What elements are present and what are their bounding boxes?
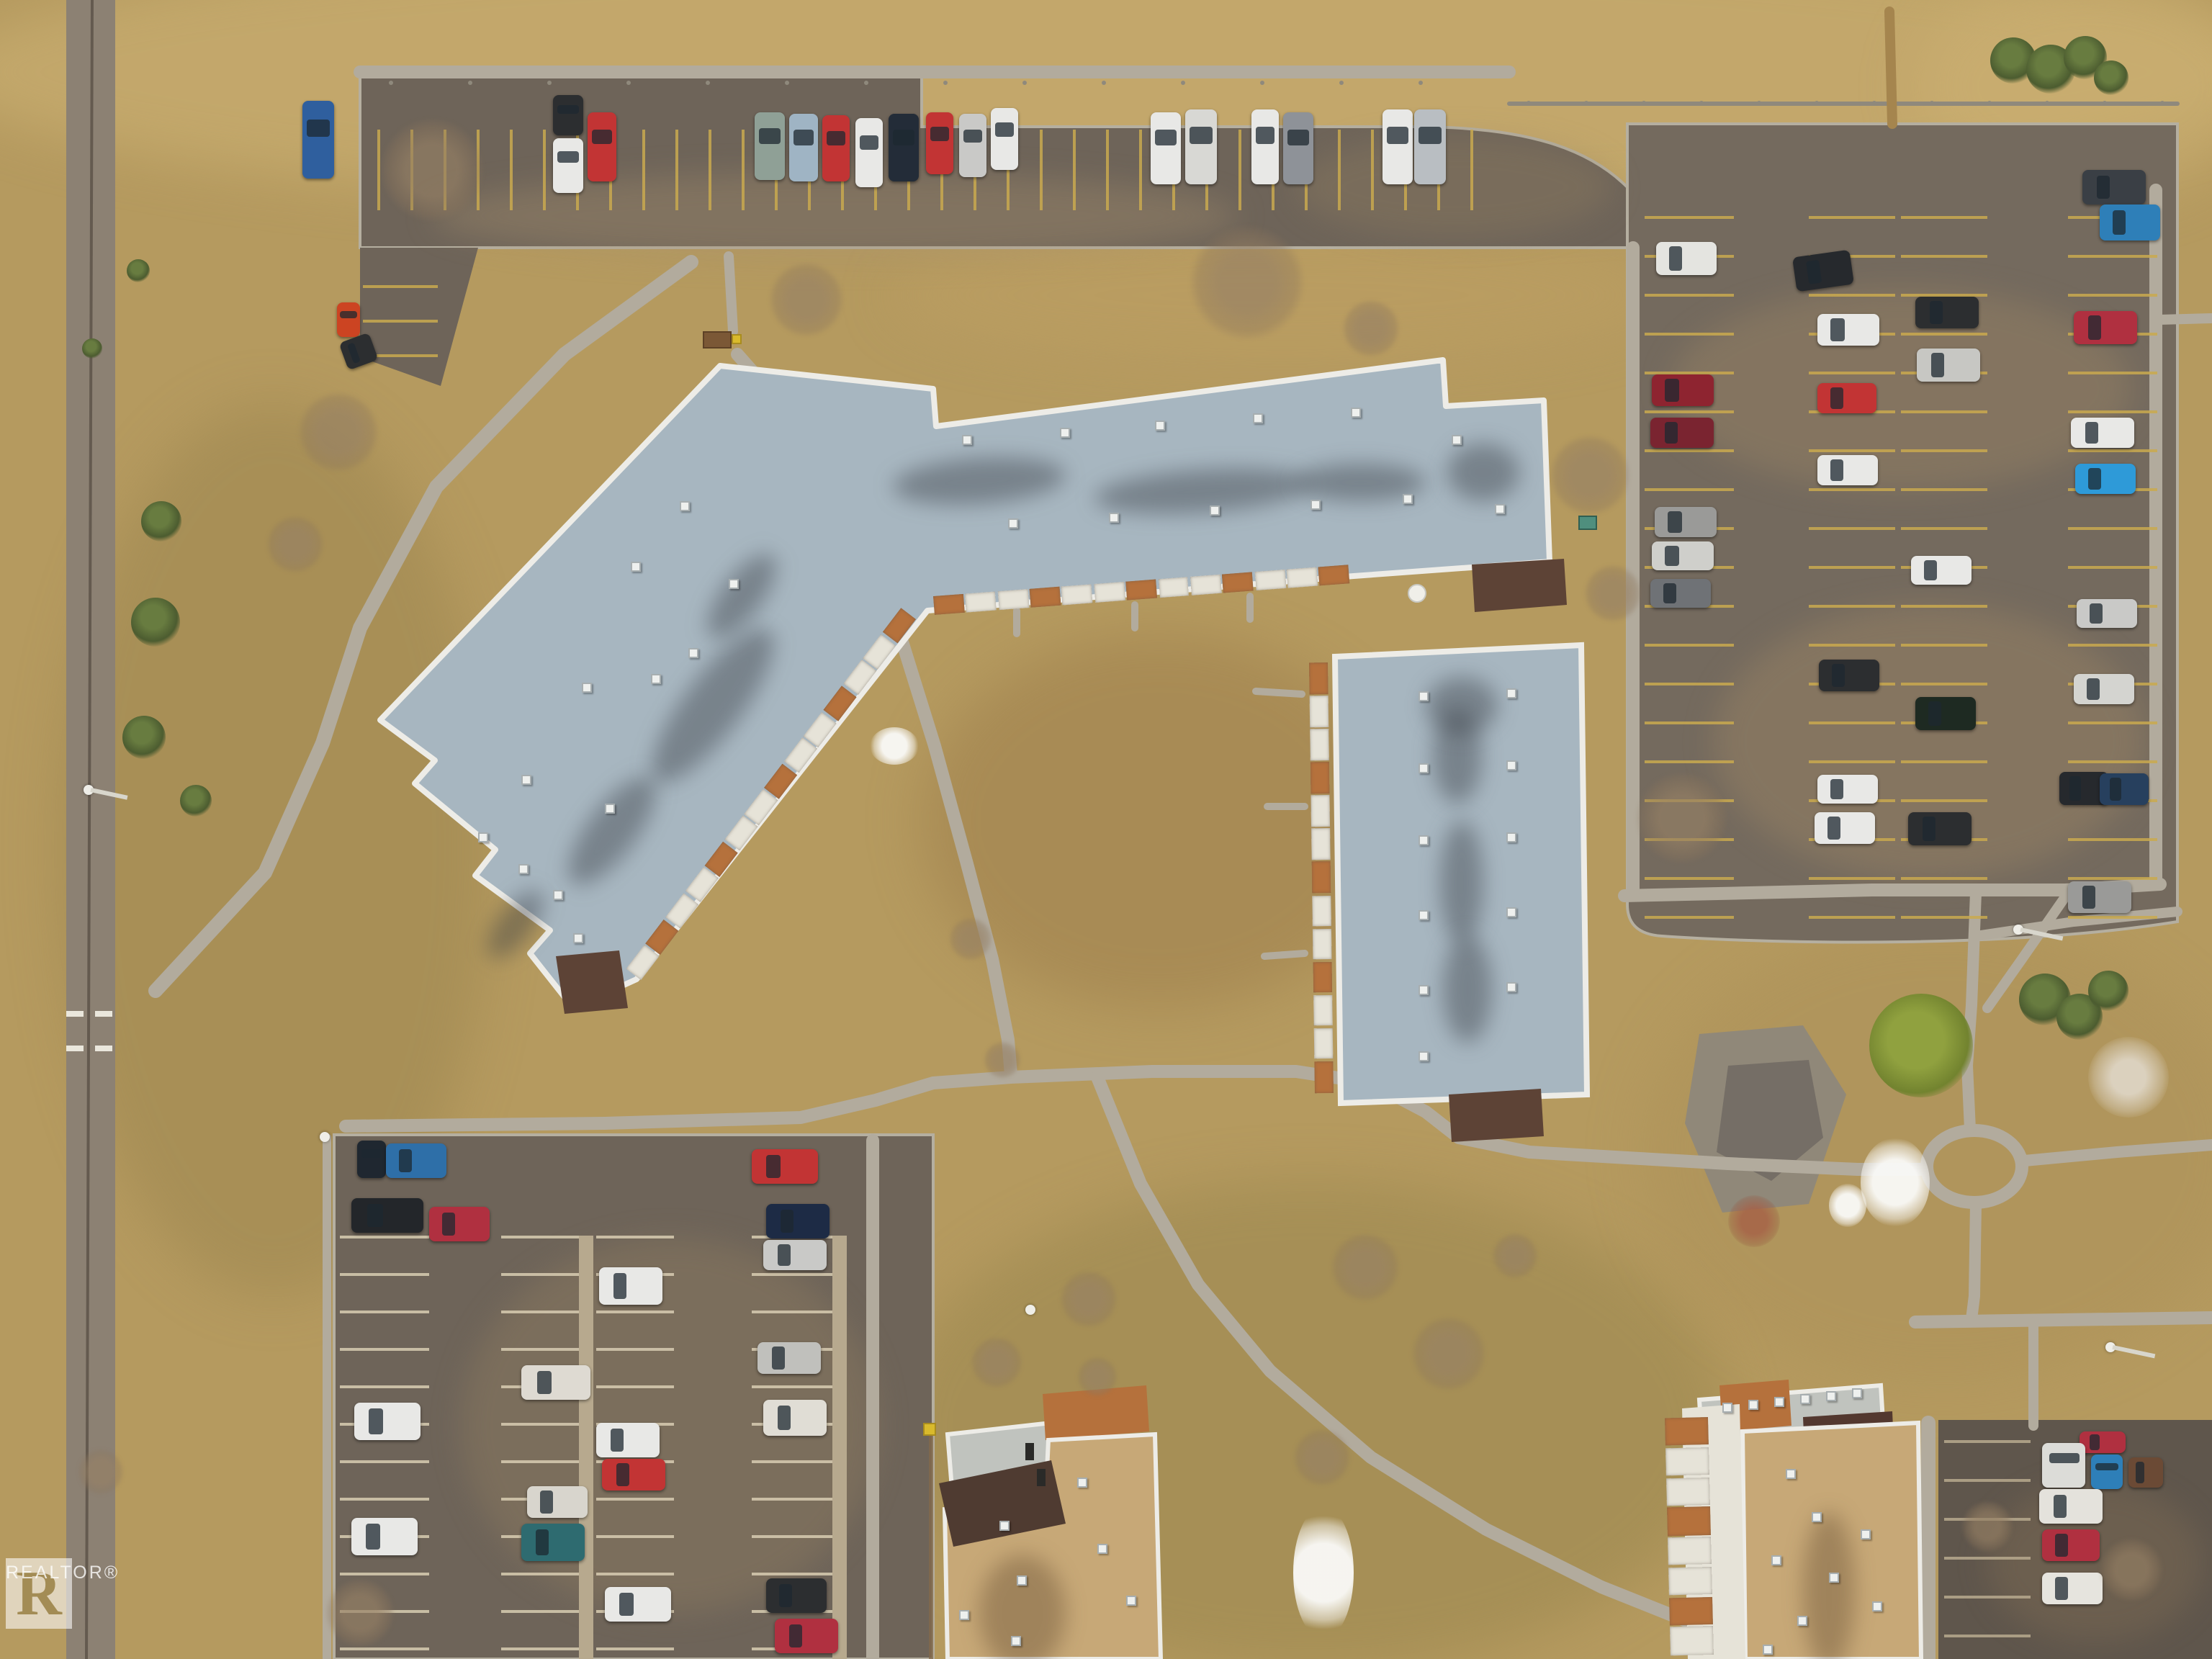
balcony-panel-white: [966, 591, 997, 612]
conifer-tree: [141, 501, 181, 541]
utility-box-green: [1578, 516, 1597, 530]
tree: [78, 1449, 124, 1495]
balcony-panel-orange: [1312, 862, 1331, 893]
snow-patch: [1293, 1506, 1354, 1639]
sidewalk-post: [864, 81, 868, 85]
sidewalk-post: [1339, 81, 1344, 85]
roof-vent: [1771, 1555, 1781, 1565]
roof-vent: [1060, 428, 1070, 438]
wood-fence: [929, 1423, 933, 1659]
sidewalk-post: [1260, 81, 1264, 85]
balcony-panel-orange: [1669, 1596, 1713, 1625]
conifer-tree: [82, 338, 102, 359]
sidewalk-post: [1181, 81, 1185, 85]
tree: [2088, 1037, 2169, 1118]
roof-vent: [605, 804, 615, 814]
yellow-bin: [923, 1423, 936, 1436]
conifer-tree: [2094, 60, 2128, 95]
tree: [1961, 1501, 2013, 1552]
sidewalk-post: [943, 81, 948, 85]
balcony-panel-orange: [1030, 587, 1061, 608]
fence-post: [1757, 101, 1761, 105]
balcony-panel-orange: [1313, 961, 1333, 992]
balcony-panel-white: [1158, 577, 1190, 598]
roof-vent: [1506, 688, 1516, 698]
building-bottom-center-window-slots: [1037, 1469, 1046, 1486]
roof-vent: [1419, 910, 1429, 920]
balcony-panel-white: [1254, 570, 1286, 590]
tree: [1584, 565, 1642, 622]
roof-stain: [1803, 1512, 1855, 1659]
roof-vent: [1506, 982, 1516, 992]
roof-vent: [1253, 413, 1263, 423]
fence-post: [2045, 101, 2049, 105]
balcony-panel-white: [1314, 1028, 1334, 1059]
balcony-panel-orange: [1667, 1506, 1711, 1535]
roof-stain: [1447, 444, 1519, 501]
sidewalk-post: [1102, 81, 1106, 85]
tree: [769, 262, 844, 337]
planter-box: [703, 331, 732, 349]
roof-vent: [1797, 1616, 1807, 1626]
sidewalk-post: [785, 81, 789, 85]
roof-stain: [1443, 936, 1492, 1043]
roof-vent: [1872, 1601, 1882, 1611]
roof-vent: [1800, 1394, 1810, 1404]
sidewalk-post: [389, 81, 393, 85]
roof-vent: [1077, 1478, 1087, 1488]
balcony-panel-white: [1310, 696, 1329, 727]
road-dash: [66, 1011, 84, 1017]
roof-vent: [1126, 1596, 1136, 1606]
road-dash: [95, 1046, 112, 1051]
balcony-panel-white: [1287, 567, 1318, 588]
roof-vent: [1452, 435, 1462, 445]
fence-post: [1930, 101, 1934, 105]
fence-post: [1815, 101, 1819, 105]
tree: [1060, 1270, 1118, 1328]
roof-vent: [1419, 985, 1429, 995]
tree: [1411, 1316, 1486, 1391]
roof-vent: [1210, 505, 1220, 516]
roof-vent: [1017, 1575, 1027, 1586]
photo-scale-wrapper: R REALTOR®: [0, 0, 2212, 1659]
roof-vent: [651, 674, 661, 684]
sidewalk-post: [706, 81, 710, 85]
tree: [1331, 1233, 1400, 1302]
balcony-panel-orange: [1310, 762, 1330, 793]
roof-vent: [1506, 760, 1516, 770]
tree: [1550, 435, 1630, 516]
roof-vent: [1495, 504, 1505, 514]
tree: [1077, 1357, 1118, 1397]
balcony-panel-orange: [933, 594, 965, 615]
street-lamp: [1025, 1305, 1035, 1315]
snow-patch: [1829, 1184, 1866, 1227]
tree: [298, 392, 379, 472]
snow-patch: [1861, 1138, 1930, 1227]
balcony-panel-white: [1311, 829, 1331, 860]
fence-post: [1584, 101, 1588, 105]
entrance-canopy-lower: [1449, 1089, 1544, 1142]
roof-vent: [1109, 513, 1119, 523]
balcony-panel-white: [1313, 995, 1333, 1026]
tree: [1728, 1195, 1780, 1247]
yellow-marker: [732, 334, 742, 344]
tree: [380, 118, 484, 222]
fence-post: [1987, 101, 1992, 105]
road-dash: [95, 1011, 112, 1017]
fence-post: [1699, 101, 1704, 105]
sidewalk-post: [626, 81, 631, 85]
roof-vent: [688, 648, 698, 658]
sidewalk-post: [547, 81, 552, 85]
fence-post: [1872, 101, 1876, 105]
roof-vent: [1506, 907, 1516, 917]
balcony-panel-orange: [1318, 565, 1350, 585]
roof-vent: [680, 501, 690, 511]
balcony-panel-white: [1094, 582, 1125, 603]
fence-post: [1527, 101, 1531, 105]
tree: [971, 1336, 1022, 1388]
roof-vent: [553, 890, 563, 900]
sidewalk-post: [1419, 81, 1423, 85]
roof-stain: [1426, 677, 1498, 734]
tree: [1492, 1233, 1538, 1279]
fence-post: [2160, 101, 2164, 105]
roof-vent: [1786, 1469, 1796, 1479]
roof-vent: [573, 933, 583, 943]
roof-vent: [1419, 763, 1429, 773]
tree: [1636, 772, 1728, 864]
roof-vent: [518, 864, 529, 874]
roof-vent: [582, 683, 592, 693]
balcony-panel-white: [1310, 796, 1330, 827]
balcony-panel-white: [1313, 928, 1332, 959]
tree: [2100, 1538, 2163, 1601]
road-dash: [66, 1046, 84, 1051]
roof-vent: [1419, 691, 1429, 701]
conifer-tree: [131, 598, 180, 647]
balcony-panel-orange: [1126, 580, 1158, 601]
tree: [325, 1578, 395, 1647]
roof-vent: [999, 1521, 1010, 1531]
roof-vent: [729, 579, 739, 589]
balcony-panel-orange: [1314, 1061, 1334, 1092]
roof-vent: [962, 435, 972, 445]
balcony-panel-white: [1668, 1537, 1712, 1565]
satellite-dish: [1408, 585, 1426, 602]
tree: [1869, 994, 1973, 1097]
roof-vent: [631, 562, 641, 572]
roof-vent: [1403, 494, 1413, 504]
entrance-canopy-upper: [1472, 559, 1567, 612]
roof-vent: [1812, 1512, 1822, 1522]
sidewalk-post: [468, 81, 472, 85]
roof-vent: [959, 1610, 969, 1620]
roof-vent: [1829, 1573, 1839, 1583]
tree: [266, 516, 324, 573]
balcony-panel-white: [1190, 575, 1222, 595]
entrance-canopy-left-wing: [556, 950, 628, 1014]
roof-vent: [521, 775, 531, 785]
roof-vent: [1763, 1645, 1773, 1655]
balcony-panel-white: [1061, 584, 1093, 605]
conifer-tree: [127, 259, 150, 282]
roof-vent: [1506, 832, 1516, 842]
roof-vent: [1011, 1636, 1021, 1646]
conifer-tree: [2088, 971, 2128, 1011]
balcony-panel-orange: [1223, 572, 1254, 593]
balcony-panel-white: [1666, 1477, 1710, 1506]
tree: [1190, 225, 1305, 340]
snow-patch: [870, 727, 919, 765]
roof-vent: [1852, 1388, 1862, 1398]
roof-vent: [1722, 1403, 1732, 1413]
roof-vent: [1748, 1400, 1758, 1410]
balcony-panel-orange: [1309, 662, 1328, 693]
roof-vent: [1097, 1544, 1107, 1554]
balcony-panel-white: [1665, 1447, 1709, 1475]
roof-stain: [1440, 821, 1483, 945]
roof-vent: [1419, 835, 1429, 845]
buildings-layer: [0, 0, 2212, 1659]
street-lamp: [320, 1132, 330, 1142]
sidewalk-post: [1022, 81, 1027, 85]
tree: [1293, 1429, 1351, 1486]
roof-vent: [1310, 500, 1321, 510]
roof-vent: [1826, 1391, 1836, 1401]
roof-vent: [1351, 408, 1361, 418]
tree: [984, 1041, 1021, 1079]
balcony-panel-white: [1668, 1566, 1712, 1595]
roof-vent: [1861, 1529, 1871, 1539]
balcony-panel-white: [1670, 1626, 1714, 1655]
aerial-photo: R REALTOR®: [0, 0, 2212, 1659]
balcony-strip: [1665, 1417, 1714, 1657]
roof-vent: [1155, 421, 1165, 431]
balcony-panel-orange: [1665, 1417, 1709, 1446]
conifer-tree: [122, 716, 166, 759]
roof-vent: [1419, 1051, 1429, 1061]
realtor-watermark-text: REALTOR®: [6, 1563, 120, 1583]
balcony-panel-white: [1310, 729, 1329, 760]
roof-vent: [478, 832, 488, 842]
fence-post: [1642, 101, 1646, 105]
balcony-panel-white: [1312, 895, 1331, 926]
tree: [949, 917, 992, 961]
tree: [1342, 300, 1400, 357]
roof-vent: [1008, 518, 1018, 529]
fence-post: [2103, 101, 2107, 105]
balcony-panel-white: [997, 589, 1029, 610]
conifer-tree: [180, 785, 212, 817]
roof-vent: [1774, 1397, 1784, 1407]
building-bottom-center-window-slots: [1025, 1443, 1034, 1460]
